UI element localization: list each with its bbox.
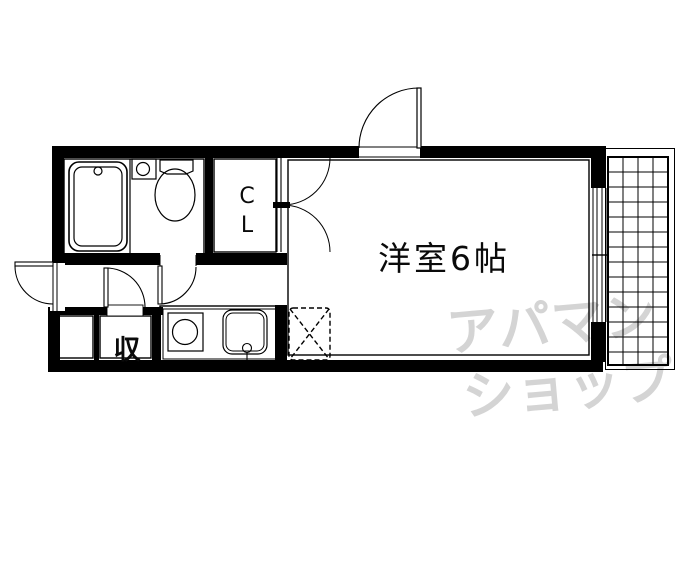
- floor-plan-image: アパマン ショップ: [0, 0, 690, 575]
- storage-label: 収: [108, 328, 146, 367]
- side-door-leaf: [15, 262, 53, 266]
- entrance-door-swing: [359, 88, 421, 159]
- wall-storage-divider: [94, 315, 99, 360]
- balcony-grid-hatch: [608, 157, 668, 365]
- main-room-label: 洋室6帖: [378, 232, 548, 280]
- storage-door-leaf: [104, 268, 108, 307]
- entrance-door-leaf: [417, 88, 421, 148]
- toilet-icon: [155, 160, 195, 221]
- sliding-window: [592, 188, 607, 322]
- wash-basin-icon: [132, 159, 156, 179]
- wall-top-right: [420, 146, 603, 158]
- side-door-swing: [15, 262, 65, 312]
- bathroom-door-swing: [158, 253, 196, 304]
- wall-top-left: [52, 146, 359, 158]
- wall-room-west-stub: [275, 305, 287, 362]
- bathroom-door-leaf: [158, 266, 162, 304]
- closet-label: C L: [229, 182, 265, 240]
- kitchen-counter: [160, 306, 279, 363]
- closet-label-line1: C: [229, 182, 265, 211]
- wall-left-upper: [52, 146, 64, 265]
- stove-burner-icon: [168, 313, 203, 351]
- floor-plan-drawing: [0, 0, 690, 575]
- entry-box-outline: [59, 316, 93, 358]
- wall-bath-closet-divider: [205, 158, 213, 255]
- bathtub-icon: [69, 162, 127, 251]
- washer-space-dashed-box: [289, 308, 330, 360]
- wall-closet-south: [196, 253, 287, 265]
- closet-double-door-swing: [273, 158, 330, 252]
- kitchen-sink-icon: [223, 310, 267, 363]
- tub-faucet-icon: [94, 167, 102, 175]
- wall-right-lower: [591, 322, 606, 362]
- closet-label-line2: L: [229, 211, 265, 240]
- wall-right-upper: [591, 146, 606, 188]
- storage-door-swing: [104, 268, 145, 316]
- balcony-outer-border: [606, 149, 675, 370]
- unit-bath: [69, 159, 195, 255]
- balcony: [606, 149, 675, 370]
